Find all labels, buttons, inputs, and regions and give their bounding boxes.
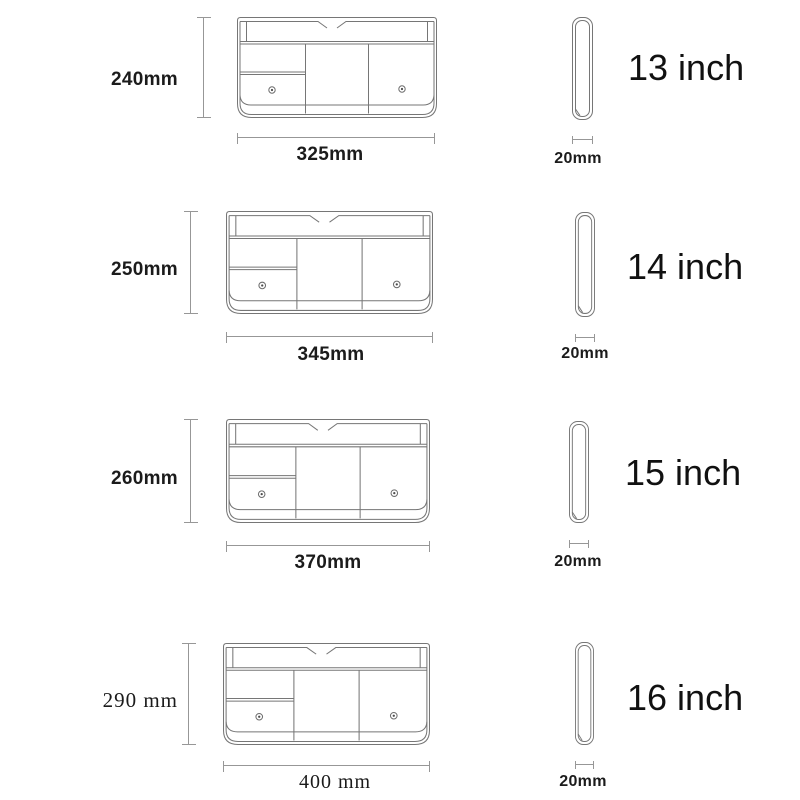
width-dimension-label: 345mm — [231, 345, 431, 364]
horizontal-dimension-line — [226, 336, 433, 337]
sleeve-front-view-drawing — [226, 419, 430, 523]
thickness-dimension-label: 20mm — [528, 151, 628, 167]
height-dimension-label: 260mm — [38, 469, 178, 488]
sleeve-side-view-drawing — [569, 421, 589, 523]
size-name-label: 13 inch — [628, 50, 744, 86]
horizontal-dimension-line — [237, 137, 435, 138]
sleeve-front-view-drawing — [226, 211, 433, 314]
thickness-dimension-line — [575, 764, 594, 765]
height-dimension-label: 240mm — [38, 70, 178, 89]
size-name-label: 16 inch — [627, 680, 743, 716]
thickness-dimension-label: 20mm — [533, 774, 633, 790]
thickness-dimension-label: 20mm — [535, 346, 635, 362]
height-dimension-label: 290 mm — [38, 690, 178, 711]
width-dimension-label: 370mm — [228, 553, 428, 572]
thickness-dimension-label: 20mm — [528, 554, 628, 570]
thickness-dimension-line — [569, 543, 589, 544]
horizontal-dimension-line — [226, 545, 430, 546]
horizontal-dimension-line — [223, 765, 430, 766]
thickness-dimension-line — [575, 337, 595, 338]
width-dimension-label: 400 mm — [235, 772, 435, 792]
size-name-label: 14 inch — [627, 249, 743, 285]
sleeve-front-view-drawing — [237, 17, 437, 118]
size-name-label: 15 inch — [625, 455, 741, 491]
vertical-dimension-line — [188, 643, 189, 745]
sleeve-side-view-drawing — [575, 212, 595, 317]
sleeve-front-view-drawing — [223, 643, 430, 745]
width-dimension-label: 325mm — [230, 145, 430, 164]
height-dimension-label: 250mm — [38, 260, 178, 279]
vertical-dimension-line — [190, 211, 191, 314]
laptop-sleeve-size-chart: 240mm 325mm — [0, 0, 800, 800]
sleeve-side-view-drawing — [572, 17, 593, 120]
sleeve-side-view-drawing — [575, 642, 594, 745]
vertical-dimension-line — [203, 17, 204, 118]
thickness-dimension-line — [572, 139, 593, 140]
vertical-dimension-line — [190, 419, 191, 523]
